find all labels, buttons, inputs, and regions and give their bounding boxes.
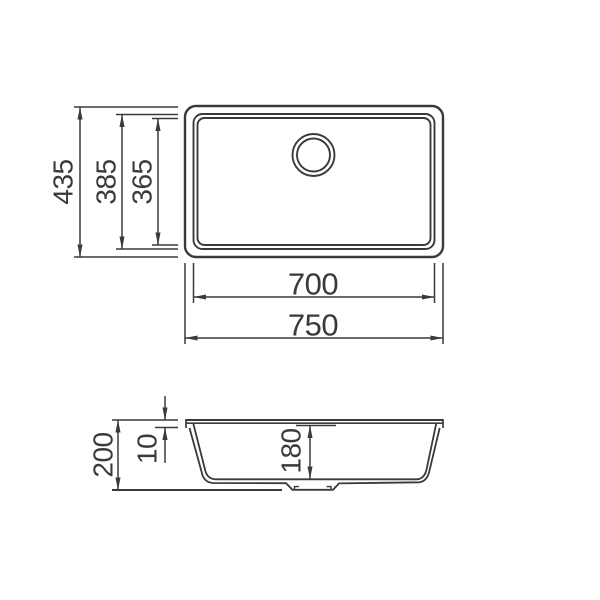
dim-rim-thickness: 10 bbox=[132, 396, 179, 464]
dim-label-bowl-width: 700 bbox=[288, 267, 338, 302]
dim-bowl-inner-height: 365 bbox=[127, 119, 179, 246]
dim-label-bowl-outer-height: 385 bbox=[91, 159, 122, 204]
sink-dimension-drawing: 435 385 365 700 750 bbox=[0, 0, 600, 600]
dim-label-overall-depth: 200 bbox=[88, 432, 119, 477]
bowl-outer-profile bbox=[190, 428, 440, 490]
dim-bowl-depth: 180 bbox=[276, 426, 337, 480]
sink-outer-edge bbox=[185, 106, 443, 257]
dim-label-overall-height: 435 bbox=[48, 159, 79, 204]
dim-bowl-width: 700 bbox=[194, 263, 435, 303]
drain-inner-circle bbox=[297, 139, 330, 172]
top-view: 435 385 365 700 750 bbox=[48, 106, 444, 344]
dim-label-bowl-inner-height: 365 bbox=[127, 159, 158, 204]
bowl-inner-profile bbox=[193, 423, 436, 479]
dim-label-bowl-depth: 180 bbox=[276, 428, 307, 473]
dim-label-overall-width: 750 bbox=[288, 308, 338, 343]
technical-drawing-canvas: 435 385 365 700 750 bbox=[0, 0, 600, 600]
side-view: 200 10 180 bbox=[88, 396, 444, 490]
dim-label-rim-thickness: 10 bbox=[132, 434, 163, 464]
drain-outer-circle bbox=[293, 134, 335, 176]
bowl-inner-edge bbox=[198, 118, 431, 245]
